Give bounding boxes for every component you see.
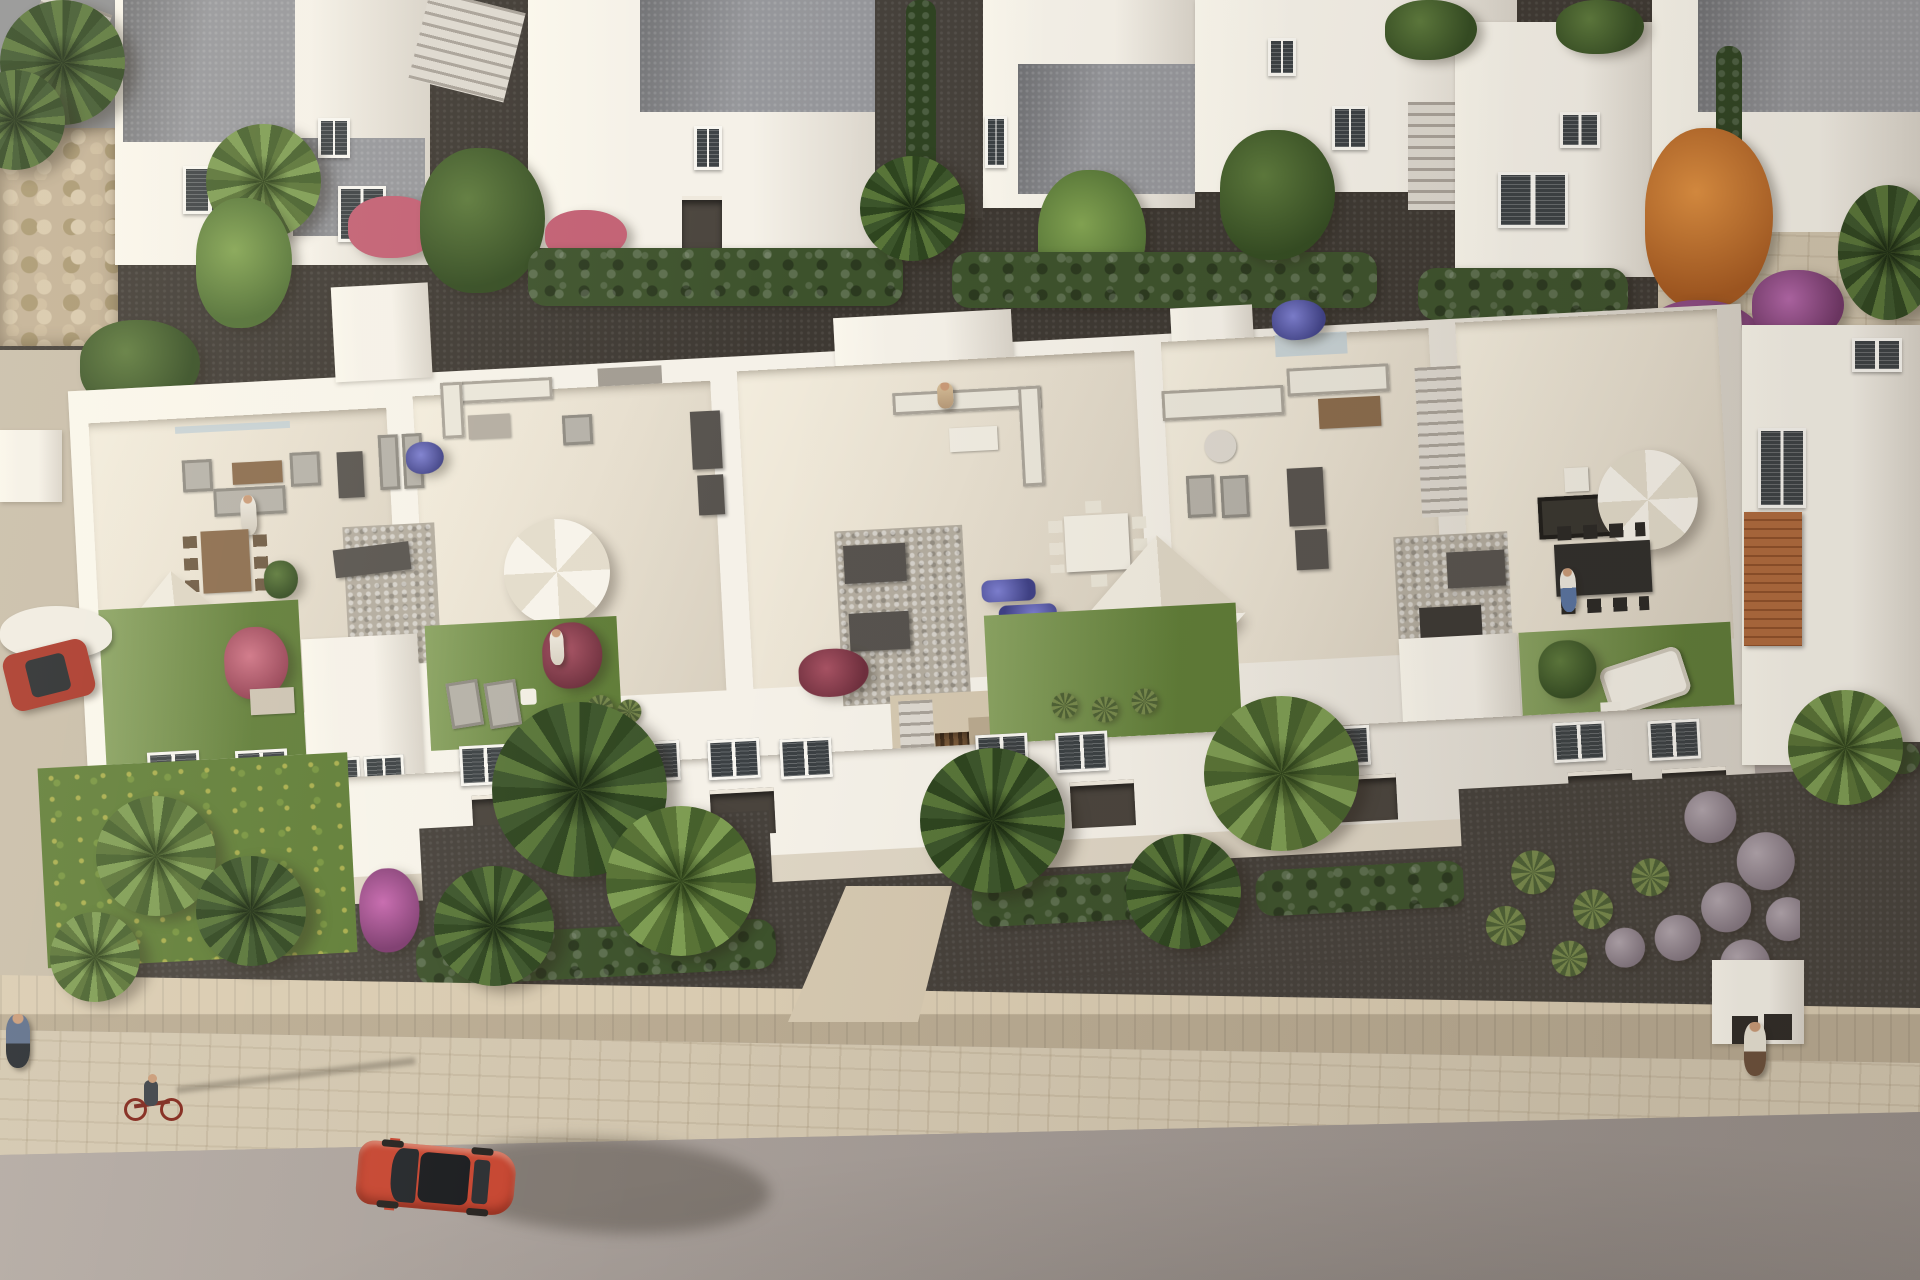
cyclist (124, 1076, 180, 1120)
armchair (562, 414, 594, 446)
ground-porch (1070, 779, 1136, 828)
storage-box (1287, 467, 1326, 527)
storage-box (336, 451, 364, 498)
red-car (355, 1139, 518, 1217)
armchair (182, 459, 214, 493)
cyclist-body (144, 1080, 158, 1106)
person-terrace-2 (549, 629, 565, 666)
sofa (1161, 385, 1284, 421)
window (1852, 338, 1902, 372)
palm-tree (1204, 696, 1359, 851)
window (1647, 718, 1701, 761)
side-table (520, 688, 537, 705)
palm-tree (434, 866, 554, 986)
person-terrace-3 (937, 382, 954, 409)
dining-chair (1085, 500, 1102, 513)
palm-tree (196, 856, 306, 966)
coffee-table (468, 413, 511, 439)
window (1758, 428, 1806, 508)
sideboard (597, 365, 662, 386)
parked-car-glass (24, 652, 72, 699)
grass-tuft (1551, 940, 1589, 978)
palm-tree (920, 748, 1065, 893)
corner-sofa (440, 382, 465, 439)
person-terrace-5 (1559, 568, 1577, 613)
armchair (289, 451, 321, 487)
window (779, 737, 833, 780)
window (1055, 730, 1109, 773)
terrace-stairs (1414, 365, 1468, 517)
palm-tree (606, 806, 756, 956)
palm-tree (50, 912, 140, 1002)
dining-chairs (1048, 521, 1065, 574)
pedestrian-right (1744, 1022, 1766, 1076)
sun-lounger (378, 434, 401, 490)
dining-chair (1091, 574, 1108, 587)
car-wheel (382, 1139, 405, 1148)
sun-lounger (1220, 475, 1250, 518)
car-windshield (389, 1147, 420, 1203)
palm-tree (1788, 690, 1903, 805)
roof-volume (331, 282, 433, 382)
portal-opening (1764, 1014, 1792, 1040)
storage-box (690, 410, 723, 469)
cube-side-table (1564, 467, 1589, 492)
dining-table-wood (200, 529, 251, 593)
sofa (1286, 363, 1389, 396)
car-wheel (471, 1147, 494, 1156)
dining-table-white (1064, 513, 1131, 572)
storage-box (697, 474, 725, 515)
coffee-table (232, 460, 283, 485)
window (707, 738, 761, 781)
cyclist-head (148, 1074, 157, 1083)
aerial-render (0, 0, 1920, 1280)
window (1552, 720, 1606, 763)
palm-tree (1126, 834, 1241, 949)
pedestrian-left (6, 1014, 30, 1068)
terrace-3-lawn (984, 603, 1242, 744)
planter-box (250, 687, 295, 715)
coffee-table (1318, 396, 1381, 429)
storage-box (1295, 529, 1329, 571)
blue-flower-planter (981, 578, 1036, 603)
sun-lounger (1186, 475, 1216, 518)
car-glass-roof (417, 1152, 471, 1206)
storage-box (849, 611, 911, 652)
terracotta-roof-strip (1744, 512, 1802, 646)
storage-box (843, 543, 907, 584)
storage-box (1446, 549, 1506, 588)
coffee-table (949, 426, 998, 452)
car-rear-window (471, 1159, 491, 1204)
